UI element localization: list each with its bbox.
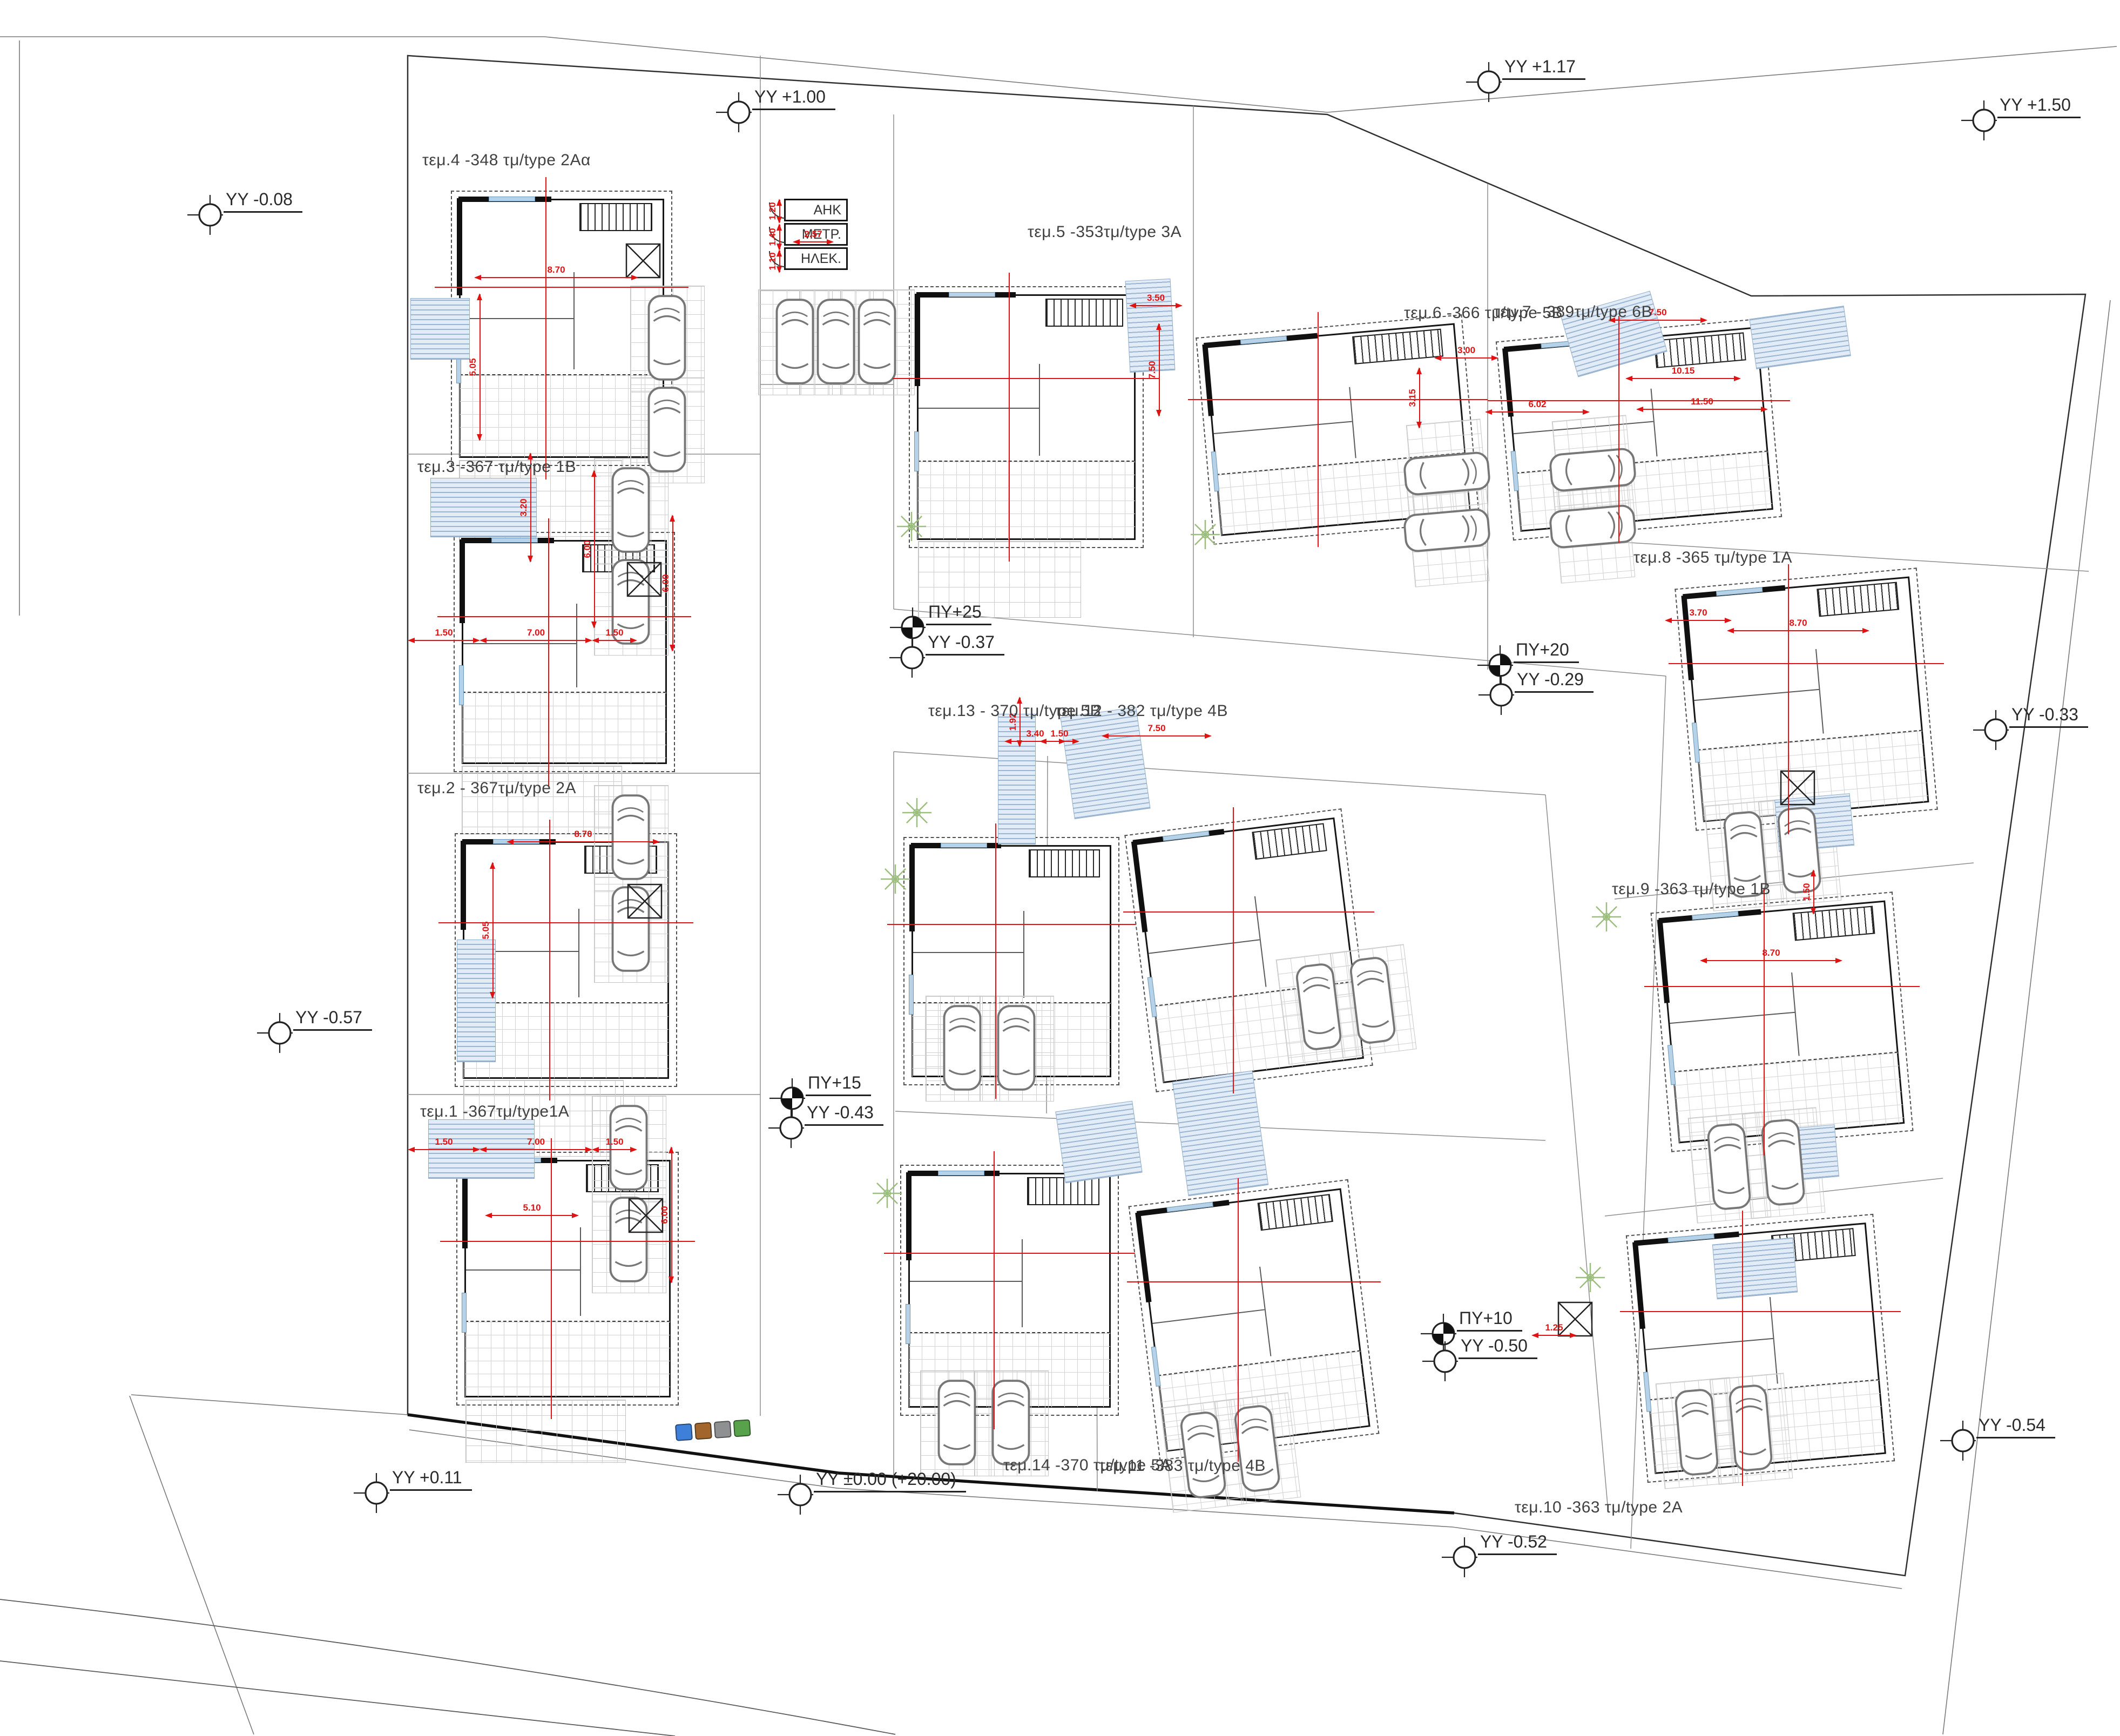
window-icon (949, 292, 995, 297)
red-axis-line (1669, 663, 1944, 664)
dimension-annotation: 11.50 (1637, 409, 1767, 410)
elevation-label: YY -0.57 (293, 1008, 372, 1031)
plot-label: τεμ.9 -363 τμ/type 1Β (1612, 880, 1771, 899)
dimension-value: 5.05 (468, 358, 478, 376)
dimension-annotation: 1.50 (593, 640, 636, 641)
dimension-value: 1.25 (1545, 1322, 1563, 1333)
dimension-annotation: 1.40 (779, 225, 780, 249)
road-edge-line (130, 1396, 254, 1734)
dimension-annotation: 1.50 (409, 1149, 479, 1150)
dimension-annotation: 1.50 (409, 640, 479, 641)
staircase-icon (1045, 299, 1123, 327)
driveway-grid (1330, 944, 1417, 1058)
dimension-value: 7.00 (527, 1137, 545, 1147)
dimension-value: 3.15 (1407, 389, 1418, 407)
interior-wall (1791, 972, 1800, 1056)
swimming-pool (1172, 1071, 1268, 1197)
window-icon (914, 431, 919, 471)
dimension-value: 6.00 (582, 540, 593, 558)
driveway-grid (592, 1187, 666, 1293)
elevation-label: YY -0.43 (805, 1103, 883, 1126)
red-axis-line (1127, 1281, 1381, 1282)
dimension-value: 1.50 (435, 1137, 453, 1147)
staircase-icon (1029, 849, 1099, 877)
red-axis-line (549, 820, 550, 1100)
benchmark-label: ΠΥ+25 (926, 602, 991, 625)
deck-grid (465, 1321, 670, 1397)
driveway-grid (594, 458, 669, 564)
dimension-value: 1.50 (435, 627, 453, 638)
red-axis-line (1188, 399, 1488, 400)
dimension-value: 2.57 (804, 229, 822, 240)
interior-wall (463, 643, 576, 644)
elevation-label: YY -0.29 (1515, 670, 1594, 693)
interior-wall (466, 1269, 580, 1271)
dimension-value: 1.50 (1050, 728, 1068, 739)
recycling-bin (675, 1423, 693, 1441)
plot-label: τεμ.1 -367τμ/type1Α (420, 1103, 569, 1121)
plot-separator-line (894, 752, 1545, 795)
dimension-value: 3.50 (1147, 293, 1165, 303)
swimming-pool (1774, 793, 1854, 852)
red-axis-line (438, 922, 693, 923)
red-axis-line (548, 518, 549, 786)
interior-wall (461, 318, 573, 319)
dimension-value: 5.05 (481, 921, 491, 939)
interior-wall (1149, 940, 1259, 954)
elevation-label: YY -0.52 (1478, 1532, 1557, 1555)
interior-wall (1214, 421, 1352, 434)
deck-grid (917, 461, 1135, 539)
window-icon (462, 1293, 467, 1333)
utility-box-label: ΗΛΕΚ. (801, 251, 841, 267)
red-axis-line (545, 177, 546, 479)
elevation-label: YY -0.37 (926, 632, 1004, 656)
swimming-pool (1763, 1124, 1839, 1183)
plot-label: τεμ.5 -353τμ/type 3Α (1028, 223, 1181, 241)
dimension-annotation: 1.20 (779, 200, 780, 222)
elevation-label: YY +1.00 (752, 87, 835, 110)
benchmark-label: ΠΥ+15 (806, 1073, 871, 1096)
interior-wall (919, 408, 1039, 409)
elevation-label: YY ±0.00 (+20.00) (814, 1469, 966, 1492)
paved-terrace (465, 1400, 626, 1463)
dimension-annotation: 5.05 (492, 863, 494, 998)
swimming-pool (1712, 1238, 1798, 1300)
dimension-annotation: 8.70 (1728, 630, 1868, 631)
dimension-annotation: 5.10 (486, 1215, 578, 1216)
red-axis-line (995, 823, 996, 1099)
dimension-annotation: 6.00 (672, 516, 673, 651)
window-icon (906, 1304, 910, 1344)
driveway-grid (630, 286, 705, 391)
dimension-annotation: 1.50 (1813, 870, 1814, 914)
dimension-annotation: 2.57 (794, 241, 833, 242)
road-edge-line (131, 1395, 408, 1415)
window-icon (459, 665, 464, 705)
dimension-value: 8.70 (547, 265, 565, 275)
red-axis-line (1123, 911, 1374, 913)
staircase-icon (1793, 906, 1875, 941)
red-axis-line (1788, 564, 1789, 834)
dimension-value: 8.70 (574, 829, 592, 840)
red-axis-line (1618, 316, 1619, 543)
swimming-pool (1060, 707, 1150, 819)
plot-label: τεμ.3 -367 τμ/type 1Β (417, 458, 576, 476)
red-axis-line (435, 287, 688, 288)
dimension-value: 3.00 (1457, 345, 1475, 356)
dimension-value: 5.10 (523, 1203, 541, 1213)
dimension-value: 6.00 (660, 574, 671, 592)
house-floorplan (917, 294, 1136, 540)
interior-wall (1670, 1012, 1794, 1024)
road-edge-line (544, 37, 1327, 112)
staircase-icon (1027, 1177, 1099, 1205)
dimension-annotation: 5.05 (480, 294, 481, 440)
dimension-value: 1.50 (605, 1137, 623, 1147)
interior-wall (1152, 1309, 1265, 1324)
plot-label: τεμ.13 - 370 τμ/type 5Β (928, 702, 1101, 720)
dimension-value: 8.70 (1762, 948, 1780, 958)
driveway-grid (840, 289, 915, 395)
red-axis-line (1644, 986, 1920, 987)
dimension-value: 6.00 (659, 1206, 670, 1224)
recycling-bin (733, 1419, 751, 1437)
interior-wall (1694, 689, 1819, 701)
plot-label: τεμ.10 -363 τμ/type 2Α (1515, 1498, 1683, 1517)
dimension-value: 7.50 (1147, 361, 1158, 379)
interior-wall (1770, 1297, 1778, 1384)
dimension-annotation: 3.70 (1666, 620, 1731, 621)
plot-label: τεμ.8 -365 τμ/type 1Α (1633, 549, 1792, 567)
driveway-grid (1214, 1392, 1301, 1506)
plot-separator-line (1545, 795, 1608, 1511)
plot-label: τεμ.7 - 389τμ/type 6Β (1494, 303, 1652, 321)
driveway-grid (1710, 1373, 1793, 1484)
dimension-annotation: 8.70 (508, 841, 659, 842)
elevation-label: YY +0.11 (390, 1468, 472, 1491)
dimension-annotation: 10.15 (1626, 378, 1740, 379)
dimension-annotation: 1.25 (1532, 1335, 1576, 1336)
elevation-label: YY +1.50 (1997, 95, 2081, 118)
interior-wall (1349, 387, 1356, 458)
interior-wall (913, 952, 1023, 953)
road-edge-line (1943, 300, 2110, 1734)
house-floorplan (1683, 576, 1929, 822)
interior-wall (1815, 649, 1824, 734)
dimension-annotation: 3.15 (1419, 368, 1420, 428)
red-axis-line (440, 1241, 695, 1242)
recycling-bin (694, 1422, 712, 1440)
dimension-annotation: 1.10 (779, 251, 780, 272)
driveway-grid (592, 1096, 666, 1201)
driveway-grid (594, 877, 669, 983)
red-axis-line (994, 1151, 995, 1429)
staircase-icon (1252, 823, 1327, 860)
driveway-grid (980, 996, 1054, 1102)
driveway-grid (594, 785, 669, 891)
red-axis-line (1009, 273, 1010, 562)
dimension-value: 6.02 (1528, 399, 1546, 410)
dimension-value: 10.15 (1672, 366, 1695, 376)
interior-wall (1259, 1267, 1271, 1356)
dimension-annotation: 8.70 (1701, 960, 1841, 961)
driveway-grid (1552, 471, 1636, 583)
staircase-icon (1817, 582, 1900, 617)
staircase-icon (1654, 332, 1746, 368)
staircase-icon (579, 203, 652, 231)
red-axis-line (551, 1138, 552, 1419)
plot-label: τεμ.14 -370 τμ/type 5Α (1003, 1456, 1171, 1475)
dimension-value: 3.40 (1026, 728, 1044, 739)
elevation-label: YY -0.33 (2009, 705, 2088, 728)
benchmark-label: ΠΥ+10 (1457, 1308, 1522, 1332)
dimension-annotation: 7.50 (1103, 735, 1211, 737)
dimension-annotation: 7.50 (1159, 324, 1160, 416)
interior-wall (1650, 388, 1657, 457)
dimension-annotation: 8.70 (475, 277, 637, 278)
utility-box-label: ΑΗΚ (814, 202, 841, 218)
red-axis-line (437, 616, 691, 617)
recycling-bin (714, 1421, 732, 1438)
utility-box: ΑΗΚ (784, 199, 848, 221)
elevation-label: YY -0.08 (224, 190, 302, 213)
dimension-annotation: 6.02 (1486, 411, 1589, 413)
red-axis-line (1742, 1211, 1743, 1486)
dimension-annotation: 1.50 (1041, 741, 1078, 742)
dimension-value: 7.50 (1147, 723, 1165, 734)
elevation-label: YY -0.54 (1976, 1415, 2055, 1438)
red-axis-line (1620, 1311, 1901, 1312)
swimming-pool (457, 940, 496, 1062)
dimension-annotation: 7.00 (481, 1149, 591, 1150)
dimension-annotation: 1.50 (593, 1149, 636, 1150)
dimension-value: 1.50 (1801, 883, 1812, 901)
swimming-pool (410, 298, 470, 360)
dimension-value: 1.50 (605, 627, 623, 638)
dimension-value: 11.50 (1691, 396, 1713, 407)
dimension-value: 3.20 (518, 498, 529, 516)
road-curve-line (0, 1599, 895, 1734)
dimension-annotation: 6.00 (671, 1147, 672, 1282)
red-axis-line (887, 924, 1136, 925)
dimension-value: 3.70 (1689, 607, 1707, 618)
plot-label: τεμ.2 - 367τμ/type 2Α (417, 779, 576, 798)
red-axis-line (1318, 312, 1319, 547)
site-plan-canvas: YY +1.00YY +1.17YY +1.50YY -0.08YY -0.33… (0, 0, 2120, 1736)
window-icon (941, 843, 987, 848)
dimension-value: 8.70 (1789, 618, 1807, 629)
red-axis-line (1233, 807, 1234, 1093)
dimension-annotation: 7.00 (481, 640, 591, 641)
window-icon (909, 975, 914, 1015)
house-floorplan (1659, 900, 1905, 1143)
dimension-value: 1.40 (767, 228, 778, 246)
dimension-value: 7.00 (527, 627, 545, 638)
interior-wall (910, 1281, 1022, 1282)
plot-label: τεμ.4 -348 τμ/type 2Αα (422, 151, 591, 170)
road-curve-line (0, 1661, 675, 1736)
staircase-icon (1352, 329, 1443, 364)
red-axis-line (1764, 888, 1765, 1156)
benchmark-label: ΠΥ+20 (1514, 640, 1579, 663)
red-axis-line (884, 1253, 1135, 1254)
elevation-label: YY +1.17 (1502, 57, 1585, 80)
dimension-value: 1.10 (767, 252, 778, 270)
staircase-icon (1258, 1194, 1333, 1231)
interior-wall (1254, 896, 1267, 987)
deck-grid (462, 692, 666, 764)
dimension-annotation: 3.00 (1435, 357, 1497, 359)
elevation-label: YY -0.50 (1459, 1336, 1537, 1359)
utility-box: ΗΛΕΚ. (784, 247, 848, 270)
dimension-value: 1.20 (767, 202, 778, 220)
dimension-annotation: 3.50 (1130, 305, 1181, 306)
swimming-pool (1055, 1101, 1142, 1184)
window-icon (938, 1171, 984, 1176)
red-axis-line (1238, 1178, 1239, 1462)
red-axis-line (893, 378, 1160, 379)
driveway-grid (1406, 475, 1490, 587)
window-icon (489, 197, 535, 201)
dimension-annotation: 6.00 (594, 471, 595, 627)
interior-wall (1645, 1338, 1773, 1350)
